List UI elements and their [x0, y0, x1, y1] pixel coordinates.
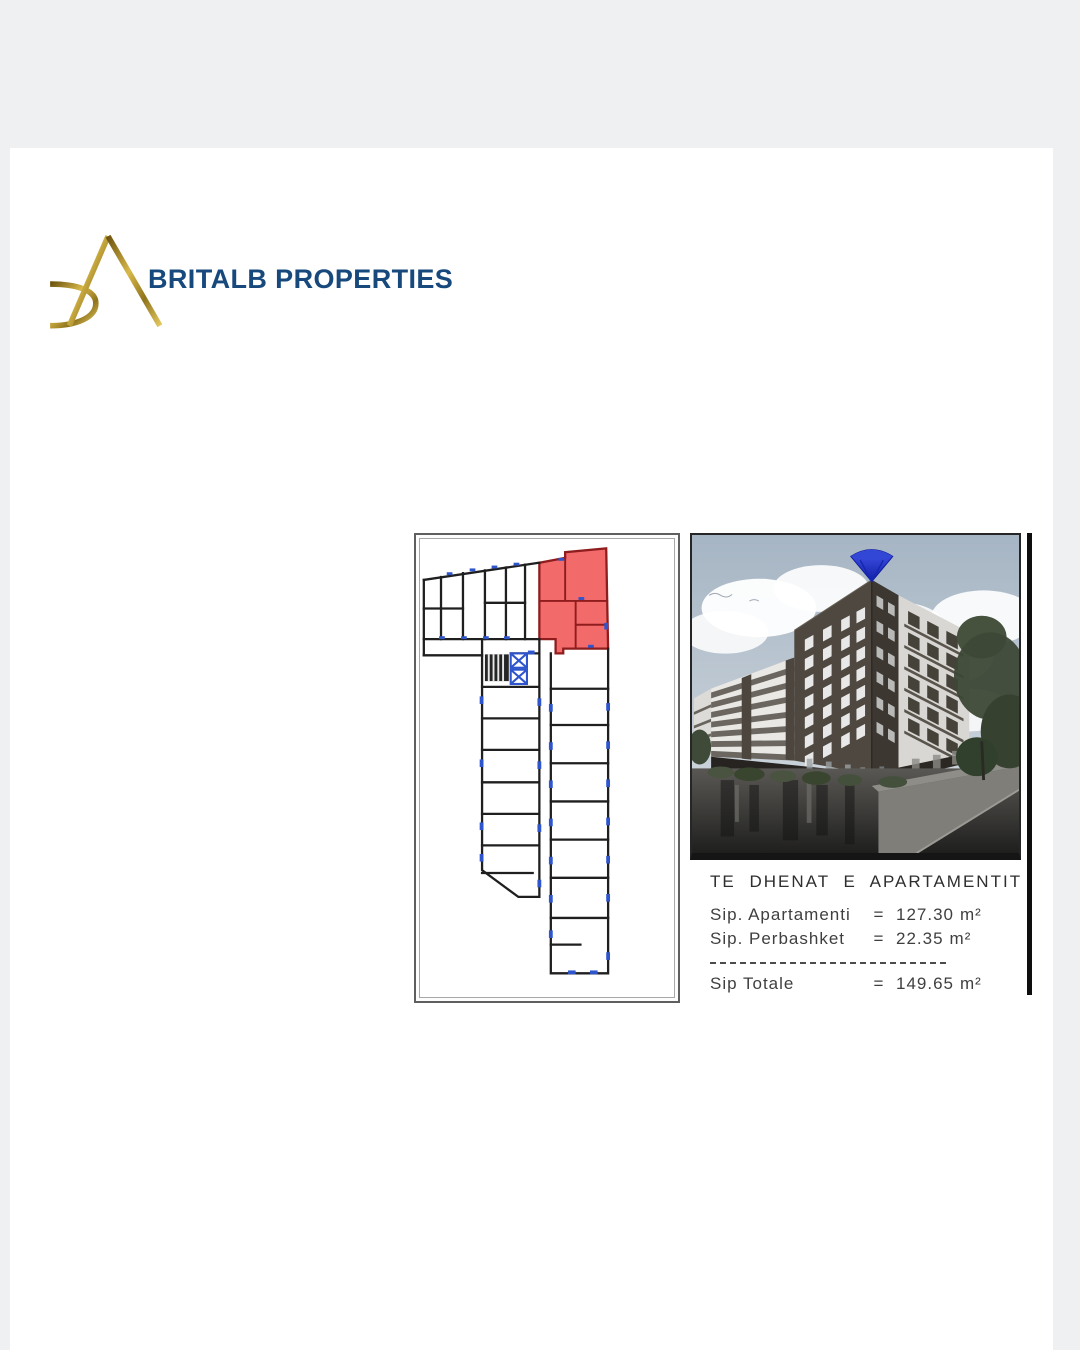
shared-area-row: Sip. Perbashket = 22.35 m² [710, 929, 1015, 953]
row-unit: m² [950, 929, 972, 949]
row-label: Sip. Perbashket [710, 929, 862, 949]
building-render-image[interactable] [690, 533, 1021, 860]
page-background: { "theme": { "background": "#eef0f2", "p… [0, 0, 1080, 1350]
apartment-data-block: TE DHENAT E APARTAMENTIT Sip. Apartament… [690, 860, 1027, 998]
apartment-data-title: TE DHENAT E APARTAMENTIT [710, 872, 1001, 892]
apartment-data-panel: TE DHENAT E APARTAMENTIT Sip. Apartament… [690, 533, 1032, 995]
total-area-row: Sip Totale = 149.65 m² [710, 974, 1015, 998]
row-value: 22.35 [896, 929, 944, 949]
row-unit: m² [960, 905, 982, 925]
dashed-separator [710, 962, 946, 964]
equals-sign: = [862, 974, 896, 994]
equals-sign: = [862, 929, 896, 949]
document-page: BRITALB PROPERTIES [10, 148, 1053, 1350]
total-unit: m² [960, 974, 982, 994]
row-value: 127.30 [896, 905, 954, 925]
total-value: 149.65 [896, 974, 954, 994]
floor-plan-image[interactable] [414, 533, 680, 1003]
apartment-area-row: Sip. Apartamenti = 127.30 m² [710, 905, 1015, 929]
total-label: Sip Totale [710, 974, 862, 994]
building-render-drawing [692, 535, 1019, 853]
floor-plan-frame [419, 538, 675, 998]
floor-plan-drawing [420, 539, 674, 997]
brand-title: BRITALB PROPERTIES [148, 264, 453, 295]
equals-sign: = [862, 905, 896, 925]
row-label: Sip. Apartamenti [710, 905, 862, 925]
